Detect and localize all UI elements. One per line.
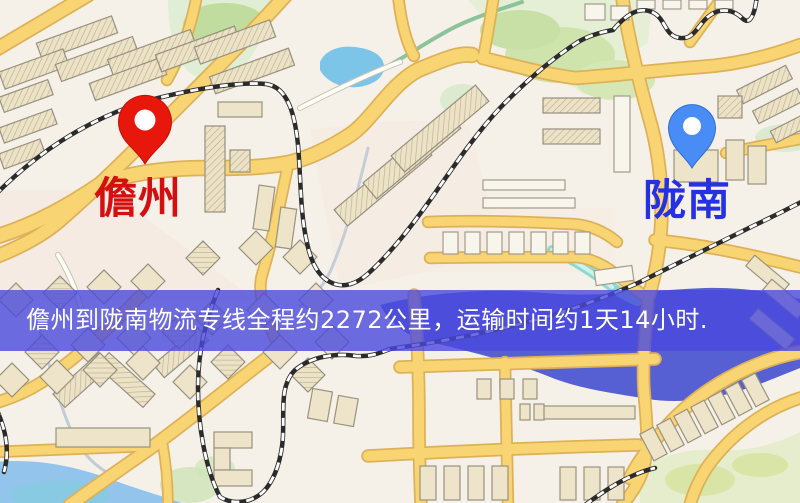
building bbox=[543, 98, 600, 113]
destination-pin-hole bbox=[683, 117, 701, 135]
building bbox=[492, 466, 508, 500]
building bbox=[543, 406, 635, 419]
building bbox=[420, 466, 436, 500]
building bbox=[718, 96, 742, 118]
route-info-banner: 儋州到陇南物流专线全程约2272公里，运输时间约1天14小时. bbox=[0, 290, 800, 351]
origin-pin-hole bbox=[135, 110, 156, 131]
building bbox=[585, 4, 605, 20]
building bbox=[443, 232, 458, 254]
origin-label: 儋州 bbox=[94, 178, 182, 221]
building bbox=[523, 379, 537, 399]
building bbox=[726, 140, 744, 180]
banner-text: 儋州到陇南物流专线全程约2272公里，运输时间约1天14小时. bbox=[0, 290, 800, 351]
building bbox=[56, 428, 150, 447]
building bbox=[214, 448, 230, 470]
building bbox=[214, 470, 252, 486]
building bbox=[531, 232, 546, 254]
building bbox=[543, 129, 600, 144]
building bbox=[308, 388, 333, 421]
building bbox=[477, 379, 491, 399]
building bbox=[444, 466, 460, 500]
building bbox=[483, 180, 565, 190]
building bbox=[614, 96, 630, 172]
building bbox=[715, 0, 733, 9]
destination-label: 陇南 bbox=[643, 180, 731, 223]
building bbox=[483, 198, 575, 208]
building bbox=[663, 0, 681, 9]
building bbox=[575, 232, 590, 254]
building bbox=[748, 146, 766, 184]
building bbox=[334, 395, 359, 426]
building bbox=[230, 150, 250, 172]
building bbox=[553, 232, 568, 254]
building bbox=[560, 467, 576, 500]
building bbox=[205, 126, 225, 212]
map-image bbox=[0, 0, 800, 503]
building bbox=[465, 232, 480, 254]
building bbox=[468, 466, 484, 500]
building bbox=[509, 232, 524, 254]
building bbox=[534, 404, 544, 420]
building bbox=[637, 0, 655, 9]
building bbox=[218, 102, 262, 117]
logistics-route-map: 儋州到陇南物流专线全程约2272公里，运输时间约1天14小时. 儋州 陇南 bbox=[0, 0, 800, 503]
building bbox=[214, 432, 252, 448]
building bbox=[500, 379, 514, 399]
park-area bbox=[732, 453, 788, 477]
building bbox=[520, 404, 530, 420]
building bbox=[689, 0, 707, 9]
building bbox=[487, 232, 502, 254]
